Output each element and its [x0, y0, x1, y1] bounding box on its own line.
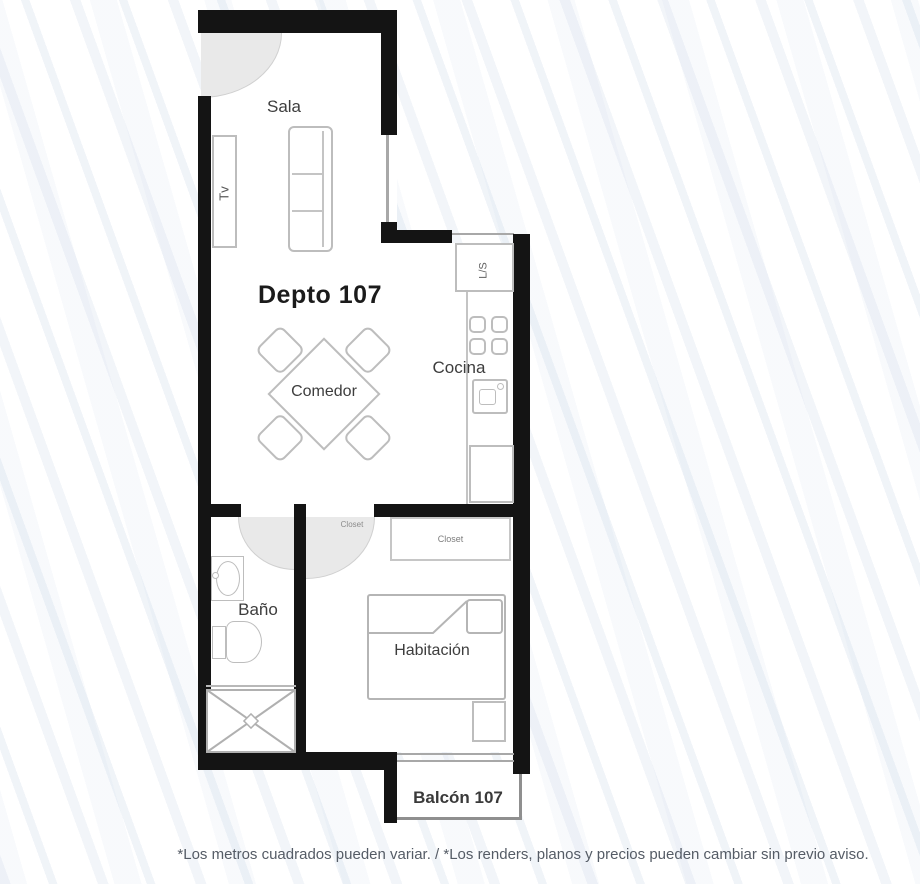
stove-burner-1: [469, 316, 486, 333]
wall-kitchen-top: [381, 230, 452, 243]
wall-bottom: [198, 752, 397, 770]
sofa-backrest-line: [322, 131, 324, 247]
balcony-rail-right: [519, 774, 522, 820]
refrigerator: [469, 445, 514, 503]
wall-sala-right-upper: [381, 10, 397, 135]
wall-right: [513, 234, 530, 774]
toilet-bowl: [226, 621, 262, 663]
sofa-seat-divider-2: [292, 210, 323, 212]
sliding-door-line-1: [397, 753, 514, 755]
window-sala: [386, 135, 389, 225]
tv-cabinet: Tv: [212, 135, 237, 248]
bedroom-closet-label: Closet: [392, 535, 509, 544]
nightstand: [472, 701, 506, 742]
bano-label: Baño: [226, 601, 290, 618]
stove-burner-4: [491, 338, 508, 355]
disclaimer-text: *Los metros cuadrados pueden variar. / *…: [86, 846, 920, 863]
wall-balcony-stub: [384, 770, 397, 823]
bedroom-closet: Closet: [390, 517, 511, 561]
kitchen-faucet: [497, 383, 504, 390]
kitchen-sink: [472, 379, 508, 414]
laundry-space: L/S: [455, 243, 514, 292]
floor-plan: Tv L/S Closet Closet: [0, 0, 920, 884]
plan-title: Depto 107: [250, 283, 390, 308]
wall-mid-left-stub: [211, 504, 241, 517]
balcony-rail-bottom: [397, 817, 522, 820]
shower: [206, 689, 296, 753]
sofa-seat-divider-1: [292, 173, 323, 175]
habitacion-label: Habitación: [376, 643, 488, 659]
balcon-label: Balcón 107: [400, 789, 516, 806]
sofa: [288, 126, 333, 252]
line-laundry-top: [452, 233, 514, 235]
bath-faucet: [212, 572, 219, 579]
wall-left: [198, 96, 211, 770]
tv-label: Tv: [218, 176, 231, 212]
kitchen-sink-basin: [479, 389, 496, 405]
shower-edge-line: [206, 685, 296, 687]
wall-top: [198, 10, 393, 33]
toilet-tank: [212, 626, 226, 659]
sliding-door-line-2: [397, 760, 514, 762]
comedor-label: Comedor: [264, 384, 384, 400]
laundry-label: L/S: [479, 256, 490, 286]
hall-closet-label: Closet: [332, 521, 372, 529]
bath-basin: [216, 561, 240, 596]
stove-burner-3: [469, 338, 486, 355]
sala-label: Sala: [252, 98, 316, 115]
wall-mid-right: [374, 504, 514, 517]
kitchen-counter-edge: [466, 292, 468, 504]
stove-burner-2: [491, 316, 508, 333]
cocina-label: Cocina: [418, 359, 500, 376]
